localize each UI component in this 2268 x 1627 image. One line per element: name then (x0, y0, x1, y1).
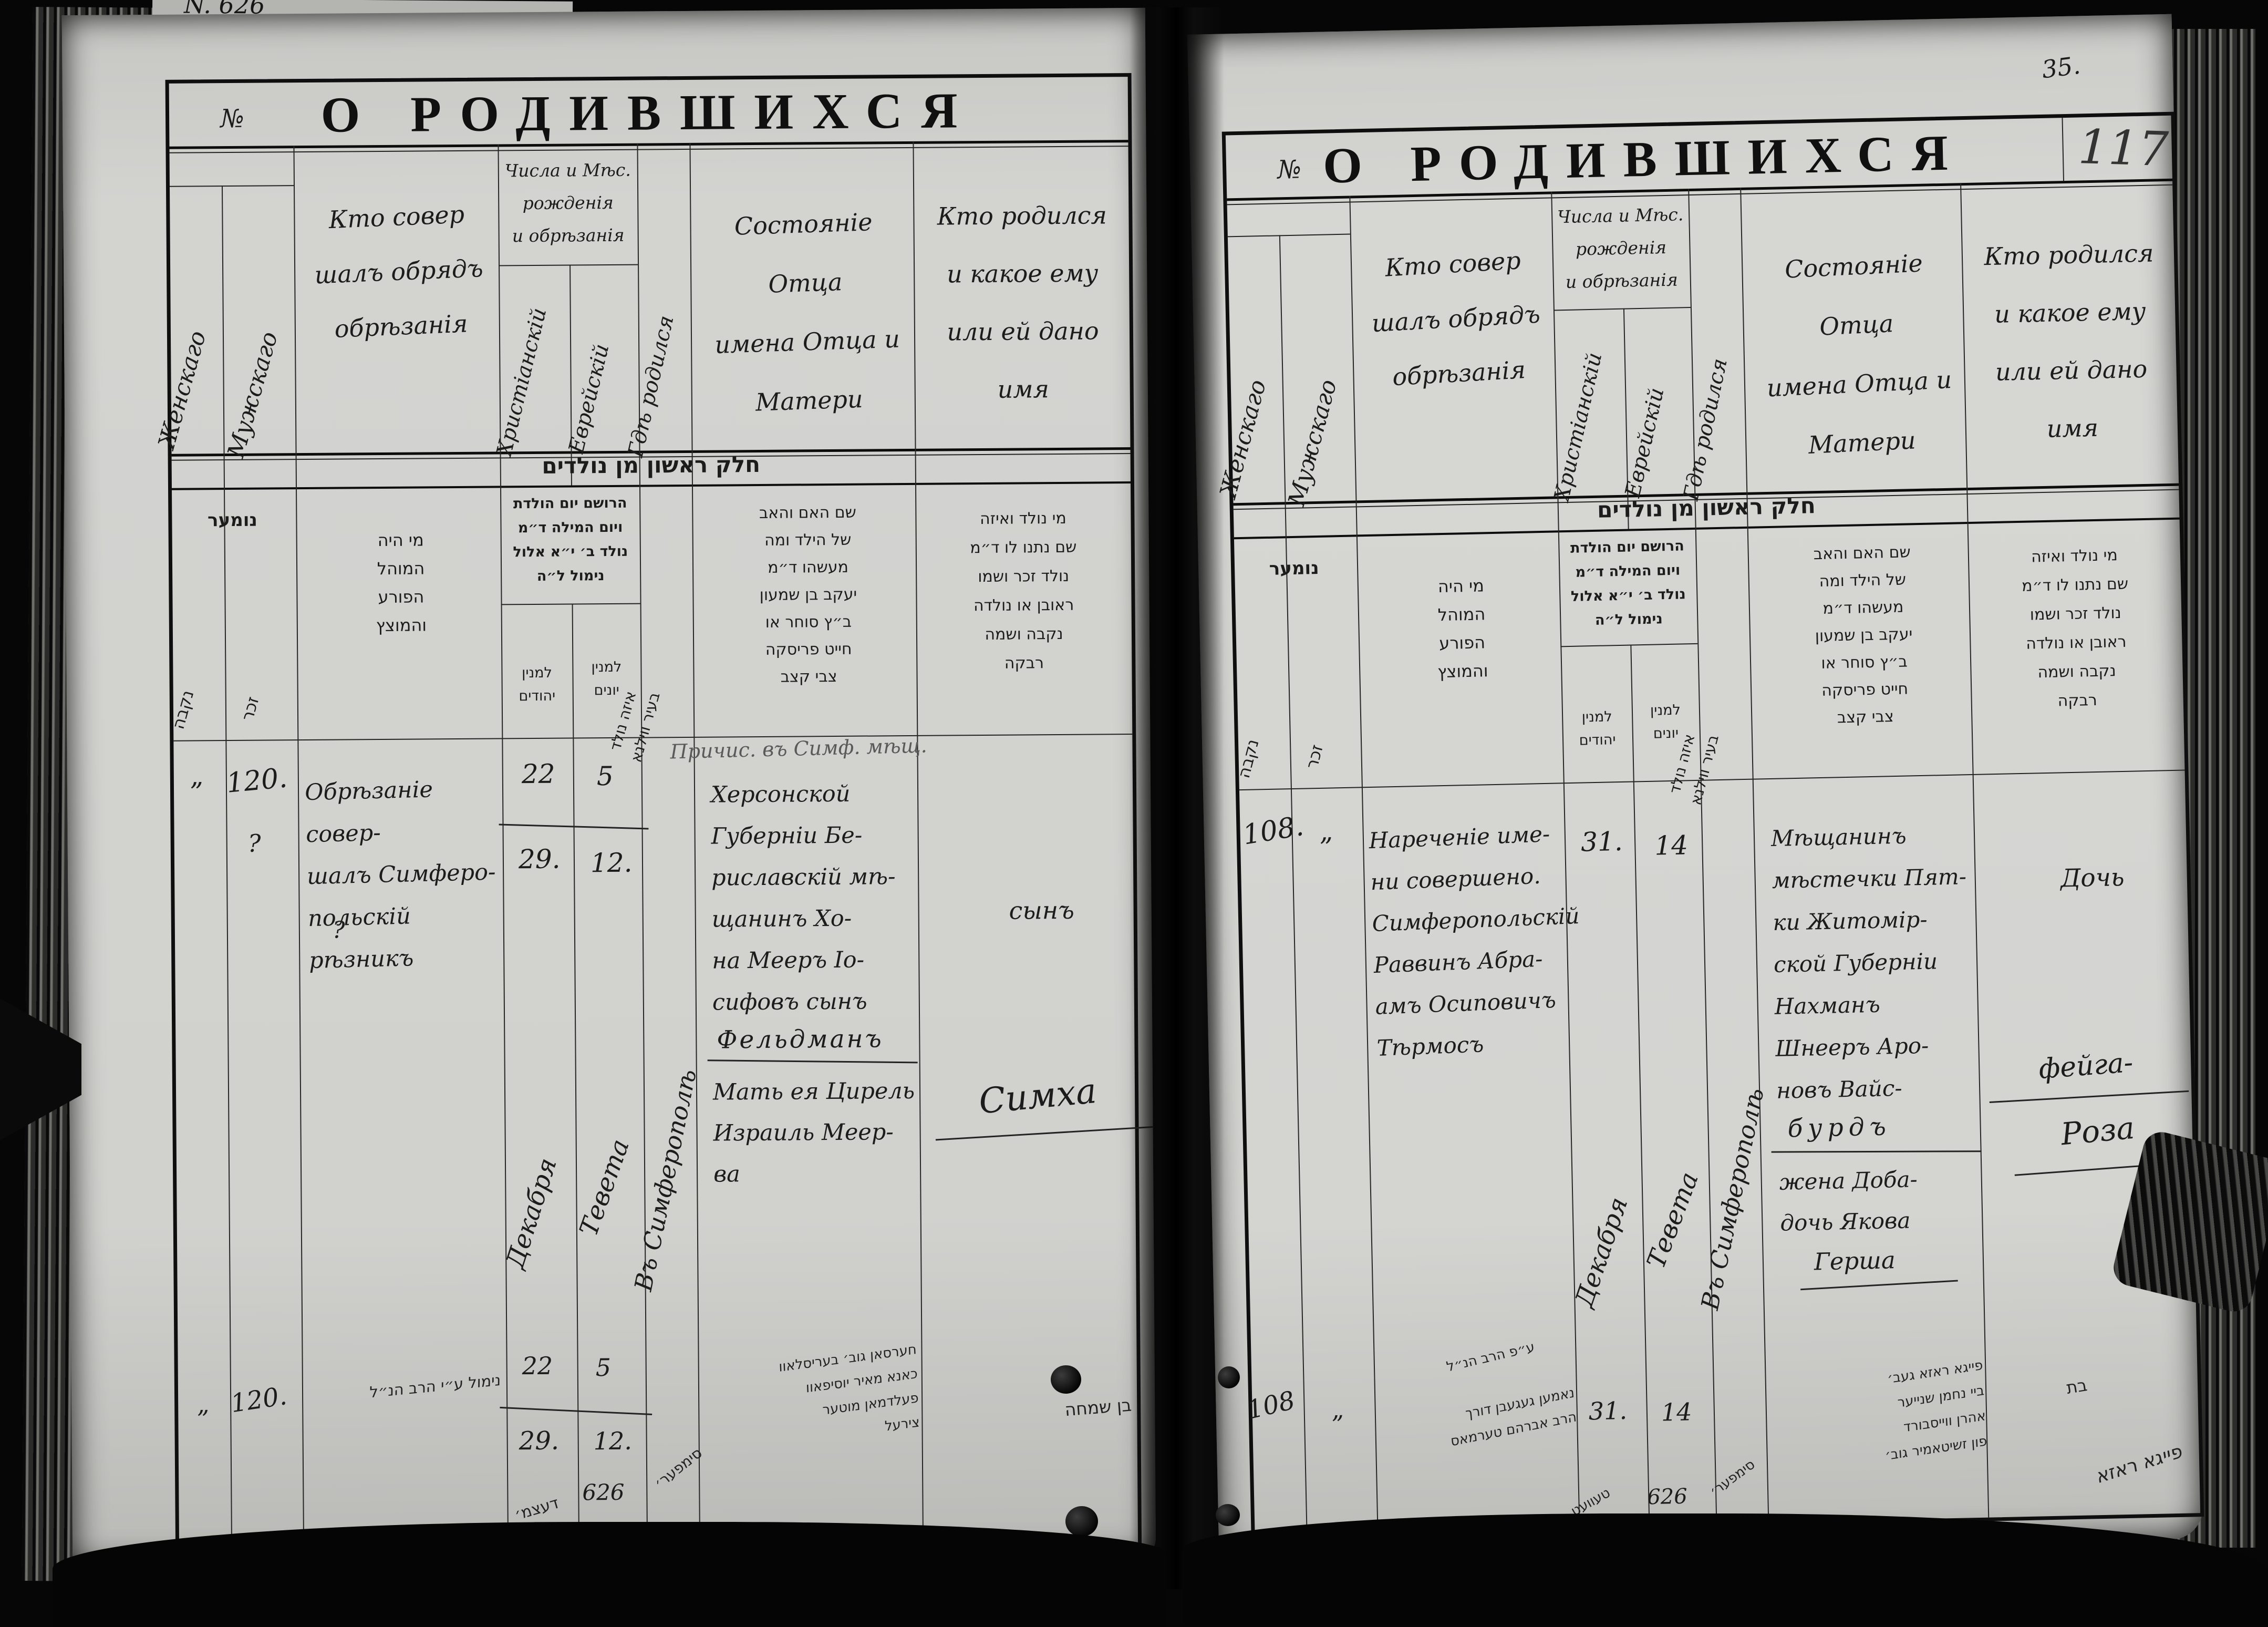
right-page: 35. О РОДИВШИХСЯ 117 № Женскаго Мужскаго… (1187, 14, 2203, 1560)
record-right-father-surname: бурдъ (1787, 1112, 1891, 1143)
record-left-child-rel: сынъ (952, 895, 1131, 925)
record-left-heb-child: בן שמחה (942, 1395, 1132, 1430)
record-right-day-jewish: 14 (1654, 830, 1689, 861)
heb-header-num: נומער (177, 509, 287, 531)
record-right-heb-child-1: בת (2065, 1375, 2088, 1398)
record-right-month-christian: Декабря (1569, 1193, 1634, 1311)
record-left-father-surname: Фельдманъ (717, 1024, 884, 1054)
pencil-folio-number: 117 (2075, 119, 2171, 178)
record-left-heb-day2: 29. (519, 1426, 559, 1456)
record-left-heb-year: 626 (582, 1479, 625, 1506)
ink-blob (1051, 1365, 1081, 1394)
ink-blob (1218, 1366, 1240, 1388)
ink-blob (1065, 1506, 1098, 1537)
col-header-father: Состояніе Отца имена Отца и Матери (697, 191, 915, 434)
page-title: О РОДИВШИХСЯ (169, 80, 1128, 145)
record-left-underline (708, 1059, 918, 1063)
heb-header-dates: הרושם יום הולדת ויום המילה ד״מ נולד ב׳ י… (502, 491, 639, 589)
rule (501, 603, 640, 605)
col-header-christian: Христіанскій (492, 305, 551, 458)
rule (499, 264, 638, 266)
rule (172, 481, 1131, 490)
rule (222, 186, 232, 1554)
heb-header-child: מי נולד ואיזה שם נתנו לו ד״מ נולד זכר וש… (1975, 540, 2176, 717)
record-right-heb-tally: ” (1331, 1410, 1344, 1438)
ink-blob (1216, 1504, 1240, 1526)
record-left-heb-who: נימול ע״י הרב הנ״ל (313, 1371, 501, 1407)
rule (170, 185, 294, 187)
col-header-christian: Христіанскій (1550, 351, 1607, 503)
record-left-number: 120. (225, 762, 288, 799)
record-right-heb-day-jew: 14 (1661, 1397, 1692, 1426)
col-header-who: Кто совер шалъ обрядъ обрѣзанія (1355, 231, 1557, 406)
record-right-heb-day-chr: 31. (1588, 1396, 1627, 1426)
heb-header-who: מי היה המוהל הפורע והמוצץ (1367, 570, 1556, 687)
record-right-father: Мѣщанинъ мѣстечки Пят- ки Житомір- ской … (1770, 813, 1979, 1112)
record-right-mother-father: Герша (1814, 1246, 1896, 1275)
record-right-where: Въ Симферополѣ (1695, 1086, 1769, 1313)
record-right-tally-male: ” (1319, 832, 1333, 863)
record-right-mother: жена Доба- дочь Якова (1779, 1158, 1983, 1244)
record-right-heb-who-note: ע״פ הרב הנ״ל (1445, 1339, 1536, 1375)
heb-header-male: זכר (237, 694, 263, 723)
hebrew-section-band: חלק ראשון מן נולדים (1234, 485, 2180, 531)
record-left-month-christian: Декабря (500, 1155, 563, 1272)
record-left-month-jewish: Тевета (574, 1135, 635, 1240)
record-right-name-underline-1 (1990, 1090, 2189, 1103)
record-left-who: Обрѣзаніе совер- шалъ Симферо- польскій … (304, 767, 505, 982)
record-left-day-christian-2: 29. (519, 844, 561, 875)
heb-header-num: נומער (1240, 557, 1349, 580)
col-header-where: Гдѣ родился (624, 313, 679, 459)
col-header-who: Кто совер шалъ обрядъ обрѣзанія (298, 186, 500, 357)
record-left-heb-month: דעצמ׳ (512, 1494, 561, 1525)
col-header-female: Женскаго (153, 328, 211, 452)
col-header-dates: Числа и Мѣс. рожденія и обрѣзанія (1553, 198, 1690, 298)
record-left-day-jewish-1: 5 (597, 761, 614, 791)
rule (1228, 234, 1350, 238)
record-left-heb-day1: 22 (522, 1352, 553, 1380)
heb-header-cal-jewish: למנין יהודים (504, 662, 570, 708)
record-right-child-name-1: фейга- (1996, 1044, 2176, 1088)
heb-header-father: שם האם והאב של הילד ומה מעשהו ד״מ יעקב ב… (705, 499, 912, 692)
col-header-num: № (180, 104, 285, 133)
record-left-heb-where: סימפער׳ (651, 1444, 705, 1492)
heb-header-child: מי נולד ואיזה שם נתנו לו ד״מ נולד זכר וש… (923, 503, 1124, 678)
bottom-shadow-left (53, 1522, 1166, 1627)
record-right-heb-year: 626 (1647, 1485, 1687, 1510)
record-left-heb-date-stroke (500, 1407, 652, 1415)
left-table: О РОДИВШИХСЯ № Женскаго Мужскаго Кто сов… (165, 73, 1142, 1559)
col-header-father: Состояніе Отца имена Отца и Матери (1749, 232, 1967, 477)
heb-header-female: נקבה (168, 688, 198, 731)
bottom-shadow-right (1182, 1513, 2268, 1624)
record-left-heb-day4: 12. (593, 1427, 632, 1456)
record-left-child-name: Симха (926, 1066, 1149, 1127)
heb-header-male: זכר (1301, 743, 1327, 771)
rule (293, 146, 304, 1554)
spine-shadow (1130, 7, 1224, 1589)
col-header-num: № (1237, 154, 1342, 186)
col-header-jewish: Еврейскій (1621, 386, 1669, 500)
record-right-month-jewish: Тевета (1641, 1168, 1704, 1272)
record-right-heb-who: נאמען געגעבן דורך הרב אברהם טערמאס (1384, 1381, 1578, 1467)
col-header-jewish: Еврейскій (564, 342, 614, 456)
heb-header-who: מי היה המוהל הפורע והמוצץ (306, 525, 496, 640)
record-left-heb-day3: 5 (596, 1353, 612, 1382)
col-header-where: Гдѣ родился (1679, 356, 1732, 503)
rule (689, 143, 700, 1551)
heb-header-female: נקבה (1234, 737, 1263, 780)
record-left-where: Въ Симферополѣ (629, 1067, 702, 1294)
folio-number: 35. (2040, 51, 2081, 84)
record-right-underline-2 (1800, 1280, 1958, 1291)
col-header-child: Кто родился и какое ему или ей дано имя (1965, 224, 2177, 459)
record-right-heb-father: פייגא ראזא געב׳ ביי נחמן שנייער אהרן ווי… (1780, 1353, 1988, 1483)
record-left-heb-tally: ” (196, 1405, 209, 1433)
record-right-who: Нареченіе име- ни совершено. Симферополь… (1368, 812, 1572, 1069)
record-left-father: Херсонской Губерніи Бе- риславскій мѣ- щ… (711, 773, 915, 1024)
heb-header-cal-jewish: למנין יהודים (1565, 705, 1630, 753)
record-right-heb-child-2: פייגא ראזא (2000, 1440, 2184, 1517)
record-left-heb-father: חערסאן גוב׳ בעריסלאוו כאנא מאיר יוסיפאוו… (712, 1337, 920, 1461)
record-left-mother: Мать ея Цирель Израиль Меер- ва (713, 1070, 917, 1195)
col-header-dates: Числа и Мѣс. рожденія и обрѣзанія (500, 154, 637, 253)
heb-header-father: שם האם והאב של הילד ומה מעשהו ד״מ יעקב ב… (1760, 538, 1967, 733)
record-left-heb-number: 120. (229, 1381, 289, 1418)
right-table: О РОДИВШИХСЯ 117 № Женскаго Мужскаго Кто… (1222, 112, 2204, 1537)
rule (1554, 307, 1691, 311)
record-left-annotation: Причис. въ Симф. мѣщ. (670, 734, 927, 764)
record-left-question: ? (248, 829, 261, 858)
left-page: О РОДИВШИХСЯ № Женскаго Мужскаго Кто сов… (62, 8, 1156, 1567)
record-right-heb-number: 108 (1244, 1385, 1298, 1425)
record-right-child-rel: Дочь (2013, 862, 2171, 894)
record-right-day-christian: 31. (1581, 826, 1623, 858)
record-left-question-2: ? (333, 917, 345, 944)
rule (1630, 644, 1650, 1525)
record-left-day-christian-1: 22 (522, 759, 555, 789)
rule (1560, 643, 1697, 647)
col-header-male: Мужскаго (223, 329, 283, 461)
record-left-day-jewish-2: 12. (591, 848, 633, 879)
col-header-child: Кто родился и какое ему или ей дано имя (917, 186, 1128, 419)
heb-header-dates: הרושם יום הולדת ויום המילה ד״מ נולד ב׳ י… (1560, 534, 1696, 633)
record-left-tally-female: ” (190, 777, 203, 807)
record-left-name-underline (936, 1126, 1153, 1141)
col-header-male: Мужскаго (1283, 377, 1342, 509)
record-right-underline (1772, 1150, 1982, 1152)
record-right-number: 108. (1241, 810, 1306, 851)
